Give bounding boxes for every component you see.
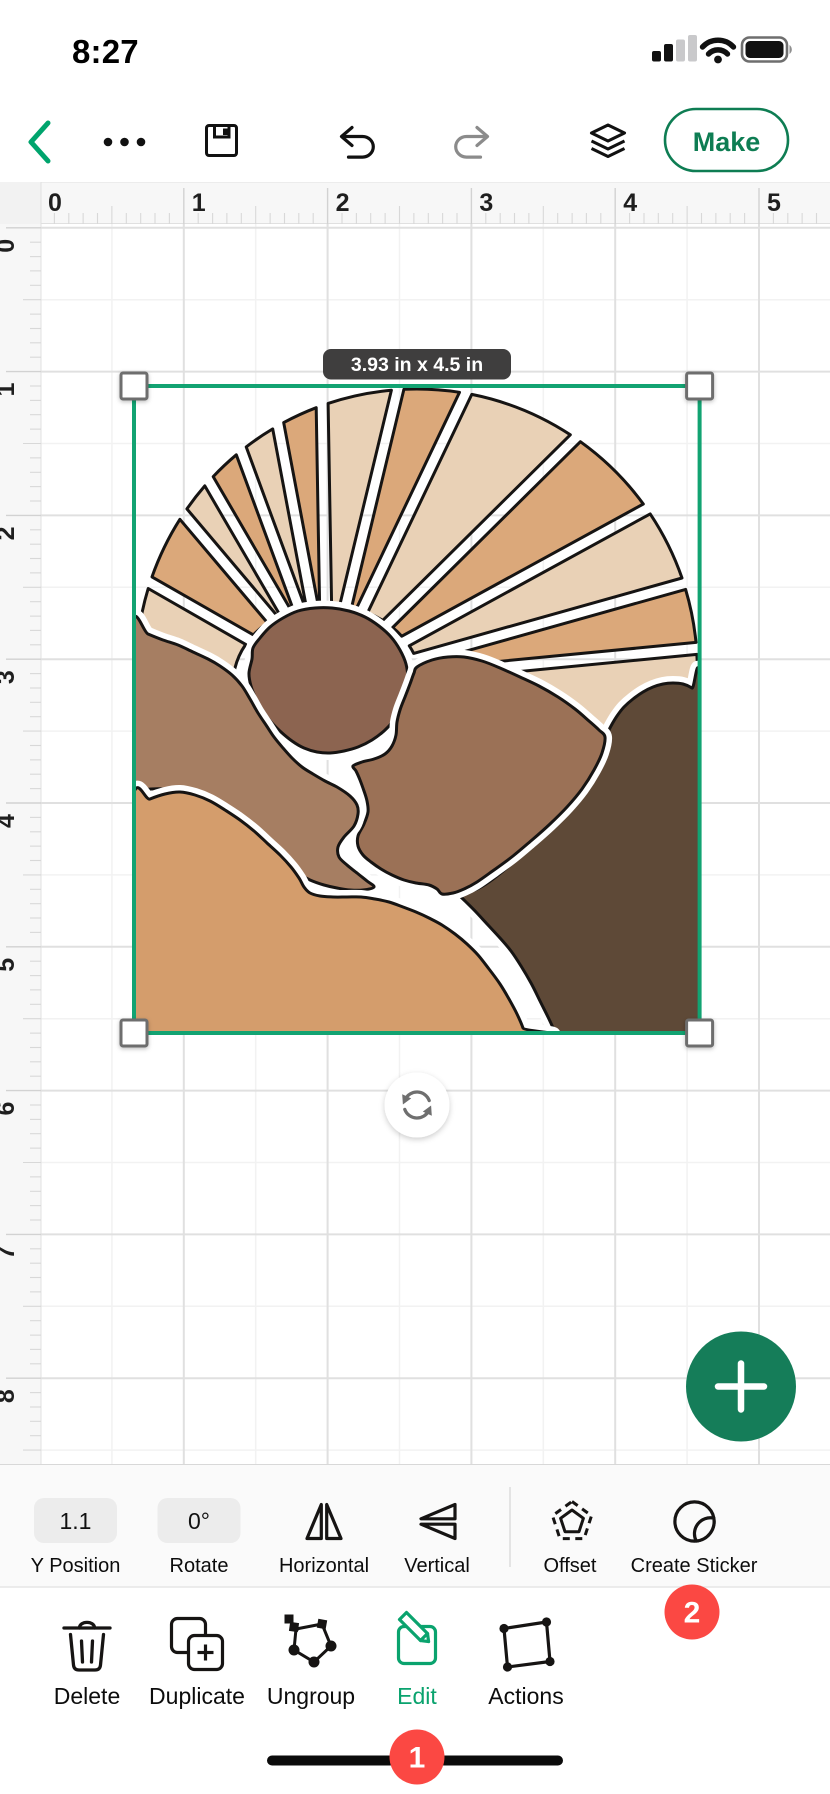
- svg-text:7: 7: [0, 1245, 20, 1259]
- svg-text:4: 4: [623, 189, 637, 217]
- svg-text:1: 1: [409, 1742, 426, 1775]
- svg-text:Duplicate: Duplicate: [149, 1683, 245, 1709]
- svg-text:Vertical: Vertical: [404, 1555, 470, 1577]
- svg-text:0: 0: [0, 239, 20, 253]
- svg-text:Offset: Offset: [544, 1555, 597, 1577]
- svg-text:Make: Make: [693, 127, 761, 157]
- svg-text:2: 2: [336, 189, 350, 217]
- svg-text:Delete: Delete: [54, 1683, 120, 1709]
- svg-text:Ungroup: Ungroup: [267, 1683, 355, 1709]
- svg-text:2: 2: [684, 1597, 701, 1630]
- svg-text:2: 2: [0, 526, 20, 540]
- svg-text:1.1: 1.1: [60, 1508, 92, 1534]
- svg-text:Y Position: Y Position: [31, 1555, 121, 1577]
- svg-text:Rotate: Rotate: [170, 1555, 229, 1577]
- svg-text:0: 0: [48, 189, 62, 217]
- svg-text:3: 3: [0, 670, 20, 684]
- svg-text:1: 1: [192, 189, 206, 217]
- svg-text:1: 1: [0, 383, 20, 397]
- svg-text:3.93 in x 4.5 in: 3.93 in x 4.5 in: [351, 354, 483, 376]
- svg-text:Edit: Edit: [397, 1683, 437, 1709]
- svg-text:5: 5: [767, 189, 781, 217]
- svg-text:3: 3: [479, 189, 493, 217]
- svg-text:4: 4: [0, 814, 20, 828]
- svg-text:6: 6: [0, 1102, 20, 1116]
- svg-text:Actions: Actions: [488, 1683, 563, 1709]
- svg-text:Horizontal: Horizontal: [279, 1555, 369, 1577]
- svg-text:0°: 0°: [188, 1508, 210, 1534]
- svg-text:8: 8: [0, 1389, 20, 1403]
- svg-text:Create Sticker: Create Sticker: [631, 1555, 758, 1577]
- svg-text:5: 5: [0, 958, 20, 972]
